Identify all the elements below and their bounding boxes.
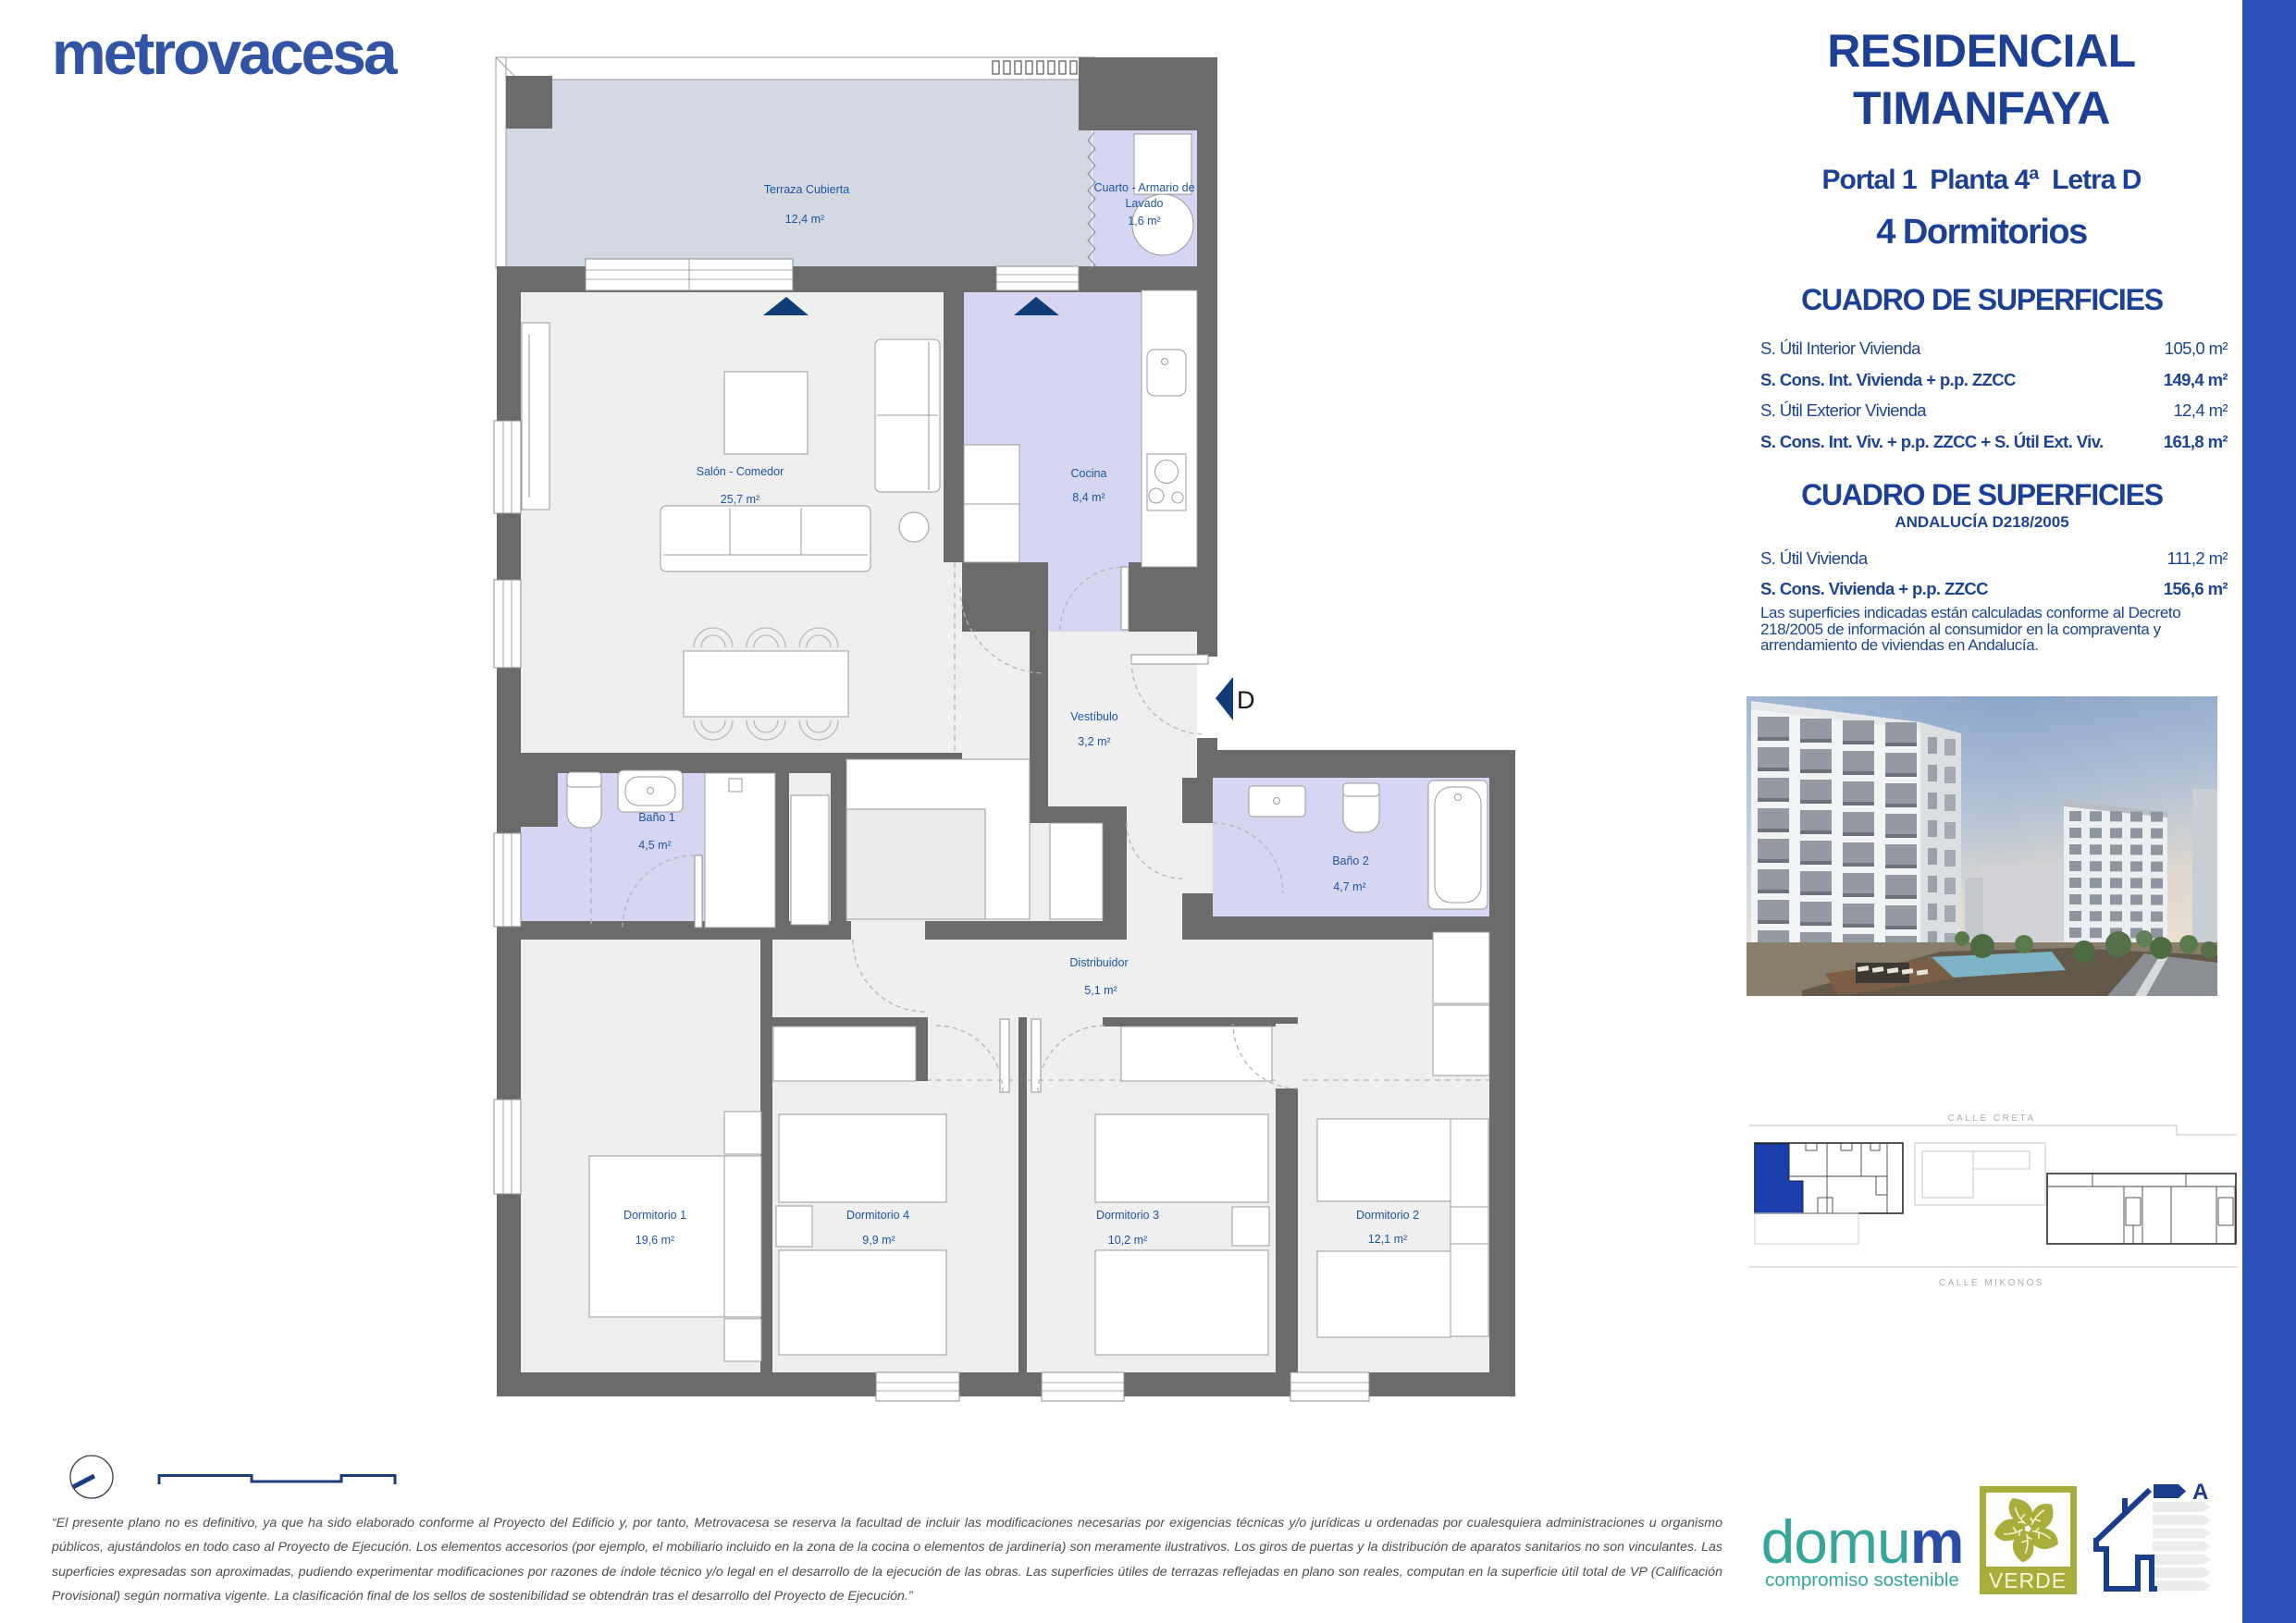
svg-text:5,1 m²: 5,1 m² bbox=[1084, 984, 1117, 997]
svg-text:19,6 m²: 19,6 m² bbox=[636, 1234, 674, 1247]
svg-text:4,5 m²: 4,5 m² bbox=[638, 839, 671, 852]
svg-text:9,9 m²: 9,9 m² bbox=[862, 1234, 895, 1247]
svg-text:Salón - Comedor: Salón - Comedor bbox=[697, 465, 784, 478]
svg-text:A: A bbox=[2192, 1480, 2208, 1505]
svg-text:Lavado: Lavado bbox=[1125, 197, 1163, 210]
svg-text:Vestíbulo: Vestíbulo bbox=[1070, 710, 1117, 723]
svg-text:Dormitorio 2: Dormitorio 2 bbox=[1356, 1209, 1419, 1222]
svg-text:Distribuidor: Distribuidor bbox=[1069, 956, 1128, 969]
svg-text:8,4 m²: 8,4 m² bbox=[1072, 491, 1105, 504]
svg-text:1,6 m²: 1,6 m² bbox=[1128, 215, 1160, 227]
svg-text:Dormitorio 3: Dormitorio 3 bbox=[1096, 1209, 1159, 1222]
svg-text:Baño 1: Baño 1 bbox=[638, 811, 675, 824]
svg-text:4,7 m²: 4,7 m² bbox=[1333, 880, 1365, 893]
svg-text:CALLE MIKONOS: CALLE MIKONOS bbox=[1939, 1278, 2044, 1288]
svg-text:12,1 m²: 12,1 m² bbox=[1368, 1233, 1407, 1246]
svg-text:10,2 m²: 10,2 m² bbox=[1108, 1234, 1147, 1247]
svg-text:Dormitorio 1: Dormitorio 1 bbox=[623, 1209, 686, 1222]
svg-text:VERDE: VERDE bbox=[1989, 1568, 2067, 1592]
svg-text:Cuarto - Armario de: Cuarto - Armario de bbox=[1093, 181, 1194, 194]
svg-text:Baño 2: Baño 2 bbox=[1332, 855, 1369, 867]
svg-text:Terraza Cubierta: Terraza Cubierta bbox=[764, 183, 849, 196]
svg-text:12,4 m²: 12,4 m² bbox=[785, 213, 824, 226]
svg-text:CALLE CRETA: CALLE CRETA bbox=[1947, 1113, 2035, 1124]
svg-text:Dormitorio 4: Dormitorio 4 bbox=[846, 1209, 909, 1222]
svg-text:3,2 m²: 3,2 m² bbox=[1078, 735, 1110, 748]
svg-text:25,7 m²: 25,7 m² bbox=[721, 493, 759, 506]
svg-text:D: D bbox=[1237, 686, 1255, 714]
svg-text:Cocina: Cocina bbox=[1071, 467, 1107, 480]
